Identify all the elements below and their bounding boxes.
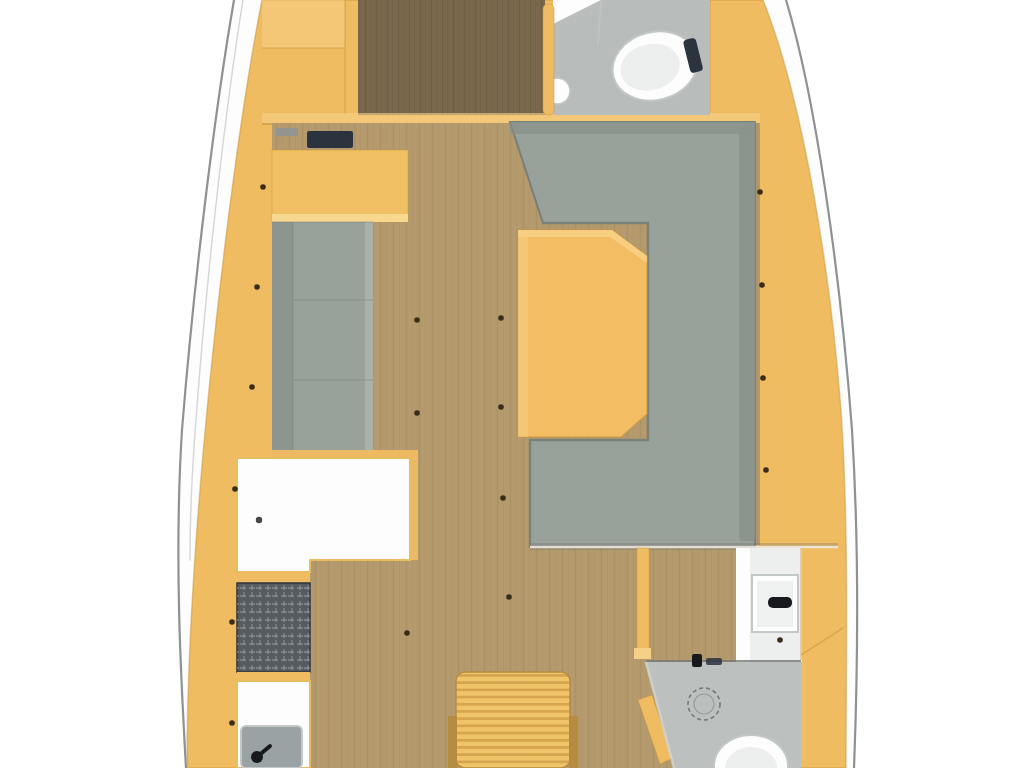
screw-dot: [229, 619, 235, 625]
yacht-floorplan: [0, 0, 1024, 768]
port-settee-backrest: [272, 222, 293, 453]
screw-dot: [759, 282, 765, 288]
screw-dot: [763, 467, 769, 473]
screw-dot: [498, 404, 504, 410]
screw-dot: [414, 317, 420, 323]
aft-cabin-door-jamb: [637, 548, 649, 656]
galley-stove-grates: [237, 583, 310, 672]
companionway-rail-right: [569, 716, 578, 768]
dining-table-edge-highlight: [518, 230, 528, 437]
galley-counter-drain: [256, 517, 262, 523]
screw-dot: [498, 315, 504, 321]
instrument-panel: [307, 131, 353, 148]
aft-head-door-latch: [706, 658, 722, 665]
screw-dot: [500, 495, 506, 501]
aft-cabin-door-jamb-cap: [634, 648, 651, 659]
companionway-rail-left: [448, 716, 457, 768]
u-sofa-back-cushion: [739, 127, 755, 541]
port-settee-front-edge: [365, 222, 373, 453]
forward-berth-sole-grain: [358, 0, 545, 115]
aft-bulkhead: [530, 545, 838, 547]
companionway-steps: [456, 672, 570, 768]
port-settee-seat: [293, 222, 373, 453]
screw-dot: [249, 384, 255, 390]
chart-desk: [272, 150, 408, 222]
companionway: [448, 672, 578, 768]
screw-dot: [760, 375, 766, 381]
screw-dot: [229, 720, 235, 726]
galley-divider: [237, 572, 310, 583]
screw-dot: [777, 637, 783, 643]
salon-starboard: [510, 122, 755, 550]
aft-head-faucet: [768, 597, 792, 608]
screw-dot: [414, 410, 420, 416]
screw-dot: [757, 189, 763, 195]
chart-desk-front-edge: [272, 214, 408, 222]
galley-counter-side-trim: [410, 458, 418, 560]
forward-berth-cushion: [262, 0, 345, 48]
floorplan-image: [0, 0, 1024, 768]
screw-dot: [404, 630, 410, 636]
screw-dot: [232, 486, 238, 492]
galley-counter: [237, 458, 410, 572]
instrument-panel-shelf: [276, 128, 298, 136]
screw-dot: [260, 184, 266, 190]
screw-dot: [506, 594, 512, 600]
aft-head-door-hinge: [692, 654, 702, 667]
screw-dot: [254, 284, 260, 290]
forward-head: [543, 0, 710, 115]
galley-divider: [237, 672, 310, 681]
u-sofa-top-back-cushion: [510, 122, 755, 134]
dining-table: [518, 230, 647, 437]
aft-head-wall: [736, 548, 750, 662]
forward-head-door: [543, 4, 554, 115]
